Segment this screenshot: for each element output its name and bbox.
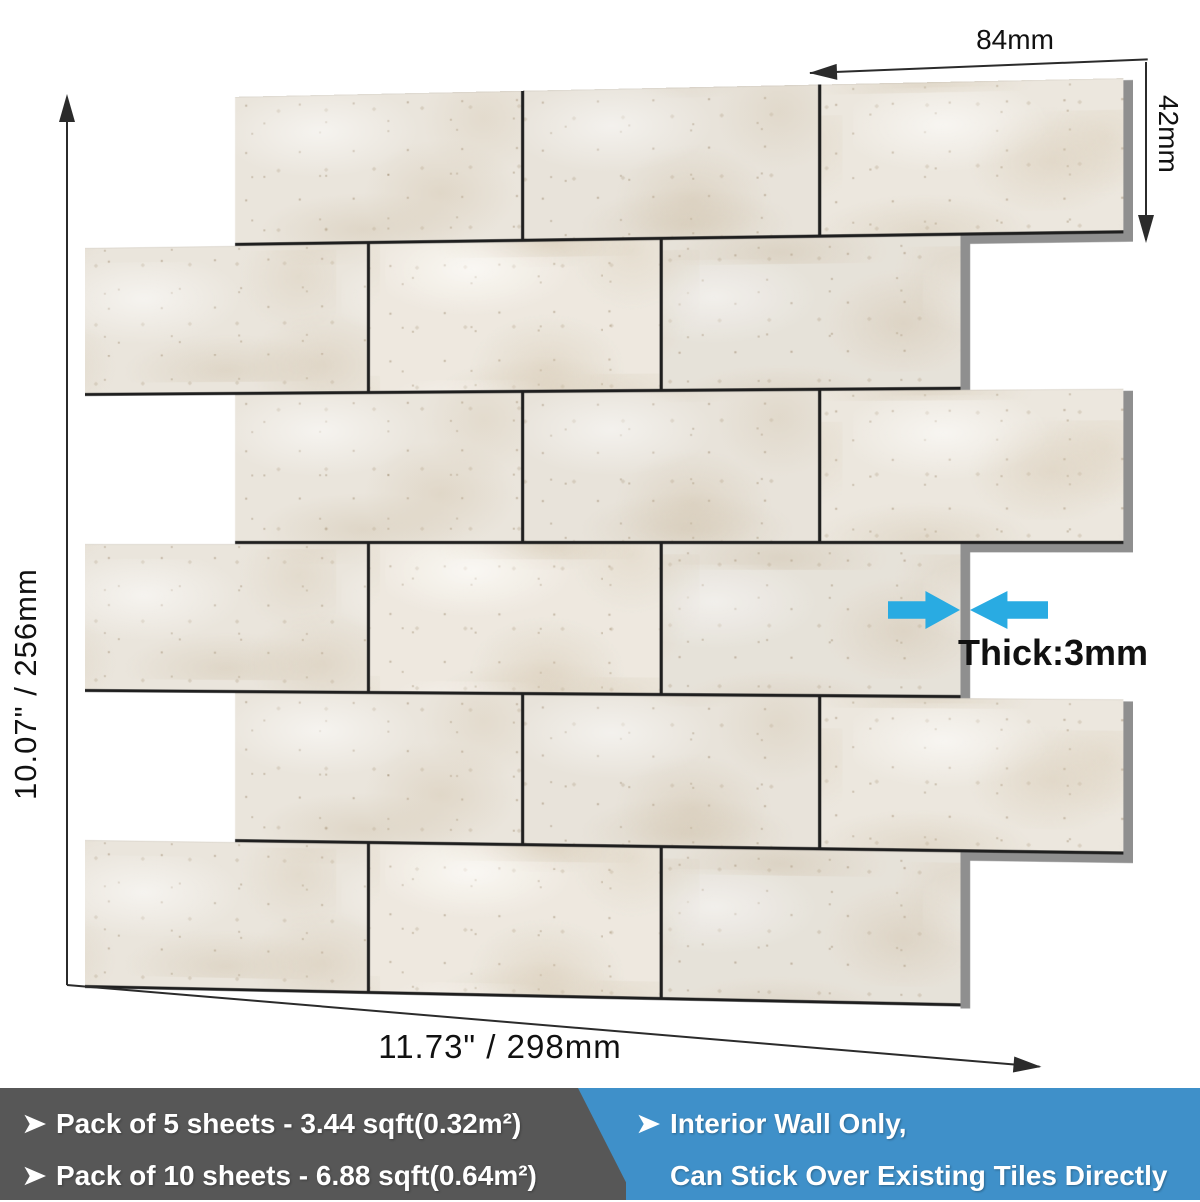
tile (663, 848, 961, 1003)
tile (370, 544, 660, 693)
usage-line-2: Can Stick Over Existing Tiles Directly (670, 1150, 1200, 1202)
tile (663, 236, 961, 389)
tile-width-dimension-label: 84mm (930, 24, 1100, 56)
tile (821, 389, 1123, 541)
tile (370, 240, 660, 391)
tile-row (85, 236, 960, 396)
tile-width-dimension-line (810, 58, 1148, 74)
tile (524, 85, 818, 239)
pack-line-2: Pack of 10 sheets - 6.88 sqft(0.64m²) (24, 1150, 626, 1202)
arrow-bullet-icon (24, 1113, 46, 1135)
usage-line-1-text: Interior Wall Only, (670, 1108, 906, 1140)
tile (85, 244, 367, 393)
sheet-height-dimension-label: 10.07" / 256mm (8, 380, 44, 800)
tile (235, 393, 521, 541)
tile-height-dimension-label: 42mm (1152, 95, 1184, 235)
usage-info-banner: Interior Wall Only, Can Stick Over Exist… (560, 1088, 1200, 1200)
tile-row (235, 78, 1123, 246)
tile-row (235, 389, 1123, 544)
arrow-bullet-icon (638, 1113, 660, 1135)
sheet-height-dimension-line (66, 98, 68, 985)
pack-line-2-text: Pack of 10 sheets - 6.88 sqft(0.64m²) (56, 1160, 537, 1192)
pack-info-banner: Pack of 5 sheets - 3.44 sqft(0.32m²) Pac… (0, 1088, 626, 1200)
arrow-right-icon (1013, 1057, 1042, 1075)
tile (235, 693, 521, 843)
tile (370, 844, 660, 997)
tile (235, 91, 521, 243)
tile (821, 697, 1123, 851)
usage-line-1: Interior Wall Only, (638, 1098, 1200, 1150)
arrow-bullet-icon (24, 1165, 46, 1187)
tile (663, 544, 961, 695)
tile (524, 391, 818, 541)
arrow-up-icon (59, 94, 75, 122)
tile (821, 78, 1123, 234)
pack-line-1-text: Pack of 5 sheets - 3.44 sqft(0.32m²) (56, 1108, 521, 1140)
tile (524, 695, 818, 847)
usage-line-2-text: Can Stick Over Existing Tiles Directly (670, 1160, 1167, 1192)
tile-sheet (85, 78, 1128, 1010)
tile-height-dimension-line (1145, 62, 1147, 240)
pack-line-1: Pack of 5 sheets - 3.44 sqft(0.32m²) (24, 1098, 626, 1150)
tile (85, 840, 367, 991)
tile (85, 544, 367, 691)
arrow-left-icon (809, 64, 838, 81)
tile-row (85, 544, 960, 698)
tile-row (85, 840, 960, 1006)
tile-row (235, 693, 1123, 855)
thickness-label: Thick:3mm (958, 632, 1148, 674)
sheet-width-dimension-label: 11.73" / 298mm (330, 1028, 670, 1066)
